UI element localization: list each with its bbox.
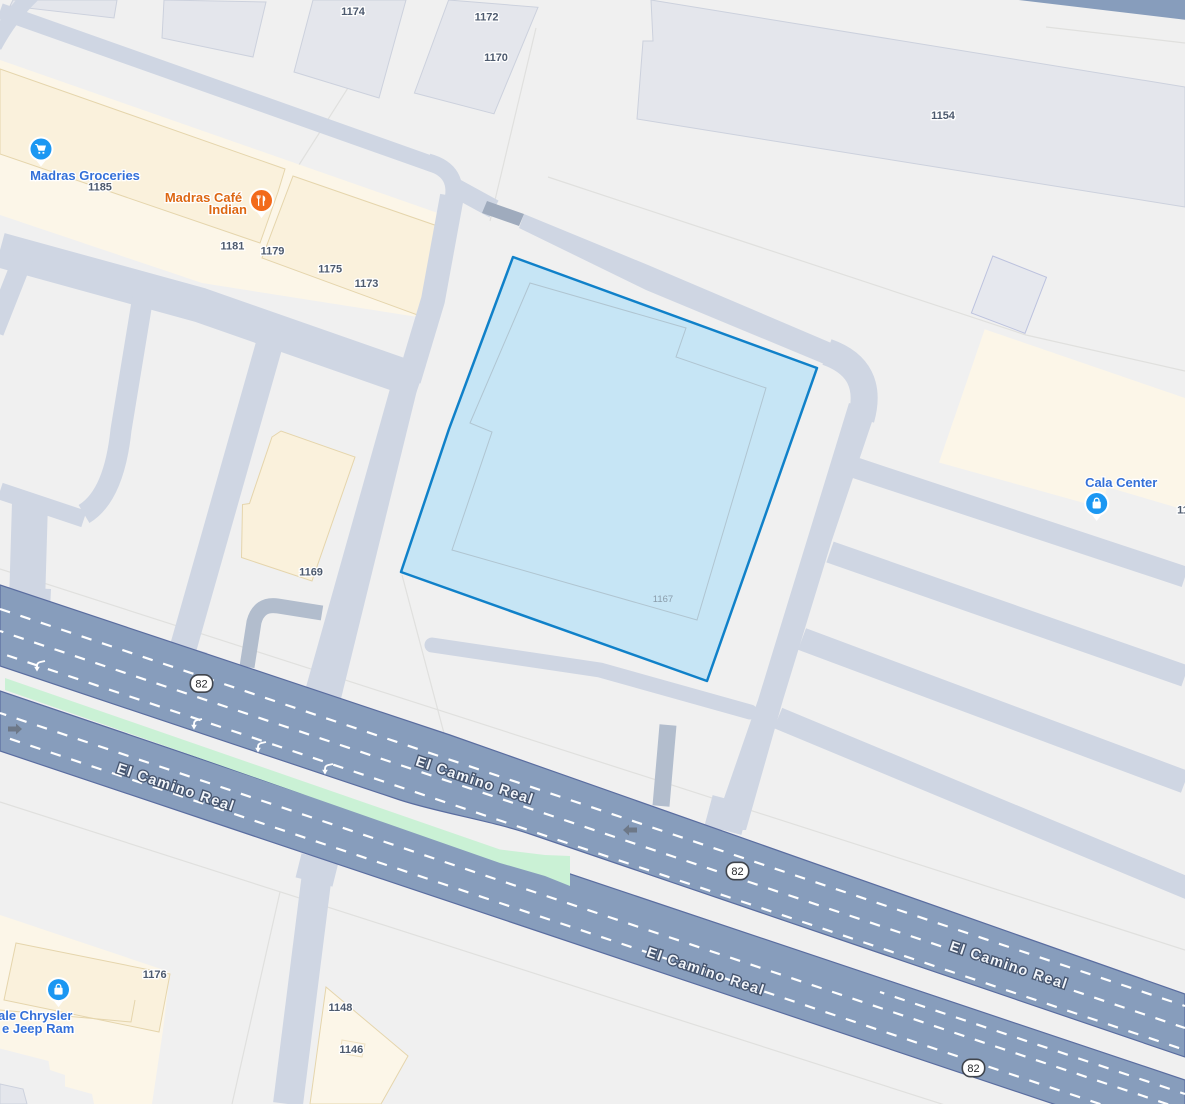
svg-text:Cala Center: Cala Center: [1085, 475, 1157, 490]
svg-text:1173: 1173: [355, 278, 379, 290]
svg-text:1146: 1146: [339, 1044, 363, 1056]
svg-text:1169: 1169: [299, 566, 323, 578]
svg-text:Indian: Indian: [209, 202, 247, 217]
svg-text:1174: 1174: [341, 6, 366, 18]
svg-text:1175: 1175: [318, 264, 342, 276]
svg-text:82: 82: [195, 678, 207, 690]
svg-text:1170: 1170: [484, 52, 508, 64]
svg-text:1172: 1172: [475, 12, 499, 24]
svg-text:e Jeep Ram: e Jeep Ram: [2, 1021, 74, 1036]
svg-text:1167: 1167: [653, 594, 673, 605]
svg-text:1176: 1176: [143, 969, 167, 981]
svg-text:1179: 1179: [261, 246, 285, 258]
svg-text:82: 82: [967, 1063, 979, 1075]
svg-text:11: 11: [1177, 505, 1185, 517]
svg-text:1154: 1154: [931, 110, 956, 122]
svg-text:Madras Groceries: Madras Groceries: [30, 168, 140, 183]
svg-text:1181: 1181: [220, 241, 244, 253]
svg-text:1148: 1148: [328, 1002, 352, 1014]
svg-text:1185: 1185: [88, 182, 112, 194]
svg-text:82: 82: [731, 866, 743, 878]
